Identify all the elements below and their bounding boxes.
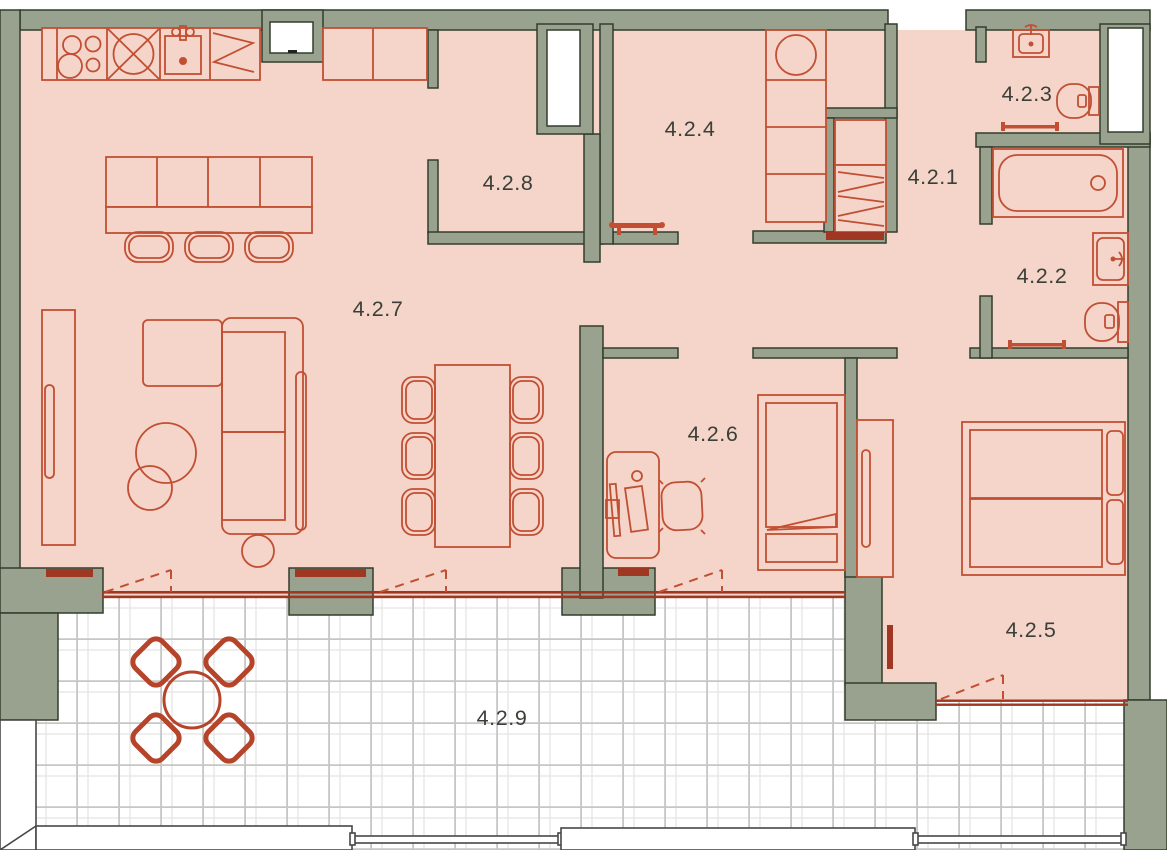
- wall-terrace-right: [1124, 700, 1167, 850]
- shaft-hall: [547, 30, 580, 126]
- room-label-4-2-4: 4.2.4: [665, 117, 716, 141]
- wall-closet-top: [824, 108, 897, 118]
- railing-post: [350, 833, 355, 845]
- room-label-4-2-1: 4.2.1: [908, 165, 959, 189]
- wall-room-divider-426-425: [845, 358, 857, 577]
- wall-wardrobe-room-west: [600, 24, 613, 244]
- wall-bath-west-upper: [980, 147, 992, 224]
- planter: [36, 826, 352, 850]
- vent-mark: [288, 50, 297, 53]
- wall-room425-top: [970, 348, 1128, 358]
- wall-pantry-south: [428, 232, 603, 244]
- wall-room426-top-west: [603, 348, 678, 358]
- room-label-4-2-7: 4.2.7: [353, 297, 404, 321]
- railing-bottom: [352, 836, 561, 843]
- wall-terrace-left: [0, 613, 58, 720]
- dining-table: [435, 365, 510, 547]
- radiator: [46, 569, 93, 577]
- floor-plan-page: 4.2.7 4.2.8 4.2.4 4.2.1 4.2.3 4.2.2 4.2.…: [0, 0, 1167, 850]
- wall-room426-top-east: [753, 348, 897, 358]
- wall-wardrobe-room-south-a: [613, 232, 678, 244]
- railing-post: [913, 833, 918, 845]
- radiator: [887, 625, 893, 669]
- closet-hanging: [835, 120, 886, 232]
- room-label-4-2-3: 4.2.3: [1002, 82, 1053, 106]
- wall-left: [0, 10, 20, 600]
- wall-right: [1128, 133, 1150, 700]
- wall-pantry-west-upper: [428, 30, 438, 88]
- railing-bottom: [915, 836, 1124, 843]
- tv-cabinet: [42, 310, 75, 545]
- room-label-4-2-8: 4.2.8: [483, 171, 534, 195]
- niche-kitchen-window: [270, 22, 313, 53]
- wall-bath-west-lower: [980, 296, 992, 358]
- wall-top-left: [20, 10, 888, 30]
- wall-pantry-west-lower: [428, 160, 438, 233]
- closet-rail: [826, 232, 884, 240]
- washer-shelf-column: [766, 30, 826, 222]
- room-label-4-2-9: 4.2.9: [477, 706, 528, 730]
- shaft-right: [1108, 28, 1143, 132]
- wall-hall-divider-upper: [584, 134, 600, 262]
- radiator: [295, 569, 366, 577]
- room-label-4-2-6: 4.2.6: [688, 422, 739, 446]
- kitchen-counter: [42, 26, 427, 80]
- wardrobe: [857, 420, 893, 577]
- room-label-4-2-2: 4.2.2: [1017, 264, 1068, 288]
- room-label-4-2-5: 4.2.5: [1006, 618, 1057, 642]
- wall-bedroom-west-pier: [845, 573, 882, 685]
- railing-post: [1121, 833, 1126, 845]
- floor-plan-drawing: 4.2.7 4.2.8 4.2.4 4.2.1 4.2.3 4.2.2 4.2.…: [0, 0, 1167, 850]
- planter: [561, 828, 915, 850]
- wall-wc-west: [976, 27, 986, 62]
- wall-bedroom-sw-pier: [845, 683, 936, 720]
- wall-hall-divider-lower: [580, 326, 603, 598]
- radiator: [618, 568, 649, 576]
